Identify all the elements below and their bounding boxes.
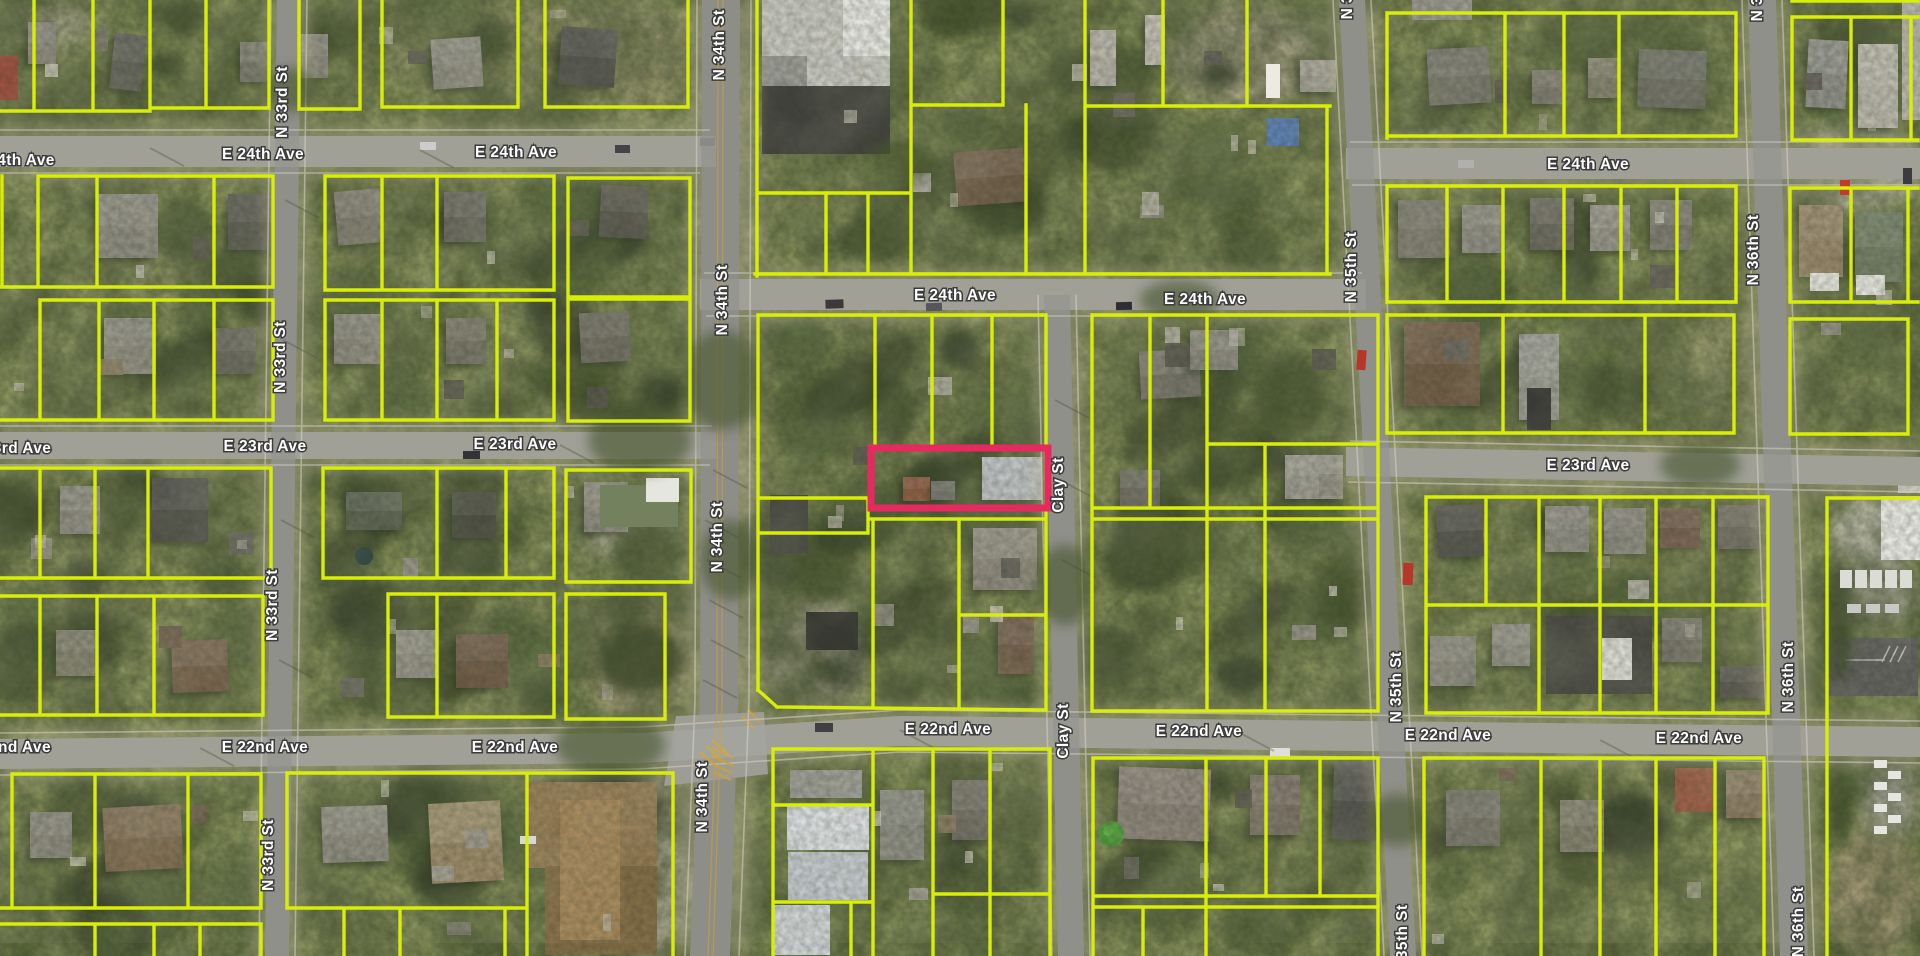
svg-text:E 22nd Ave: E 22nd Ave: [905, 721, 991, 738]
svg-text:E 23rd Ave: E 23rd Ave: [1547, 457, 1630, 474]
svg-text:N 34th St: N 34th St: [694, 762, 711, 833]
svg-text:N 34th St: N 34th St: [714, 265, 731, 336]
svg-text:E 23rd Ave: E 23rd Ave: [474, 436, 557, 453]
svg-text:N 35th St: N 35th St: [1394, 905, 1411, 956]
svg-text:N 36th St: N 36th St: [1790, 887, 1807, 956]
svg-text:E 24th Ave: E 24th Ave: [1164, 291, 1246, 308]
svg-text:E 24th Ave: E 24th Ave: [914, 287, 996, 304]
svg-text:N 33rd St: N 33rd St: [264, 569, 281, 641]
svg-text:E 24th Ave: E 24th Ave: [475, 144, 557, 161]
svg-text:E 22nd Ave: E 22nd Ave: [222, 739, 308, 756]
svg-text:E 22nd Ave: E 22nd Ave: [1156, 723, 1242, 740]
svg-text:N 35th St: N 35th St: [1388, 652, 1405, 723]
svg-text:E 22nd Ave: E 22nd Ave: [472, 739, 558, 756]
svg-text:N 35th St: N 35th St: [1343, 232, 1360, 303]
svg-text:N 33rd St: N 33rd St: [274, 66, 291, 138]
svg-text:Clay St: Clay St: [1050, 457, 1067, 512]
svg-text:N 36th St: N 36th St: [1749, 0, 1766, 21]
svg-text:N 36th St: N 36th St: [1780, 642, 1797, 713]
svg-text:N 35th St: N 35th St: [1339, 0, 1356, 19]
svg-text:3rd Ave: 3rd Ave: [0, 440, 51, 457]
svg-text:N 36th St: N 36th St: [1745, 215, 1762, 286]
svg-text:E 24th Ave: E 24th Ave: [1547, 156, 1629, 173]
svg-text:E 24th Ave: E 24th Ave: [222, 146, 304, 163]
svg-text:E 22nd Ave: E 22nd Ave: [1656, 730, 1742, 747]
svg-text:4th Ave: 4th Ave: [0, 152, 55, 169]
svg-text:E 22nd Ave: E 22nd Ave: [1405, 727, 1491, 744]
svg-text:E 23rd Ave: E 23rd Ave: [224, 438, 307, 455]
svg-text:N 34th St: N 34th St: [711, 10, 728, 81]
svg-text:N 33rd St: N 33rd St: [260, 819, 277, 891]
svg-text:2nd Ave: 2nd Ave: [0, 739, 51, 756]
svg-text:Clay St: Clay St: [1055, 703, 1072, 758]
svg-text:N 33rd St: N 33rd St: [272, 321, 289, 393]
svg-text:N 34th St: N 34th St: [709, 502, 726, 573]
